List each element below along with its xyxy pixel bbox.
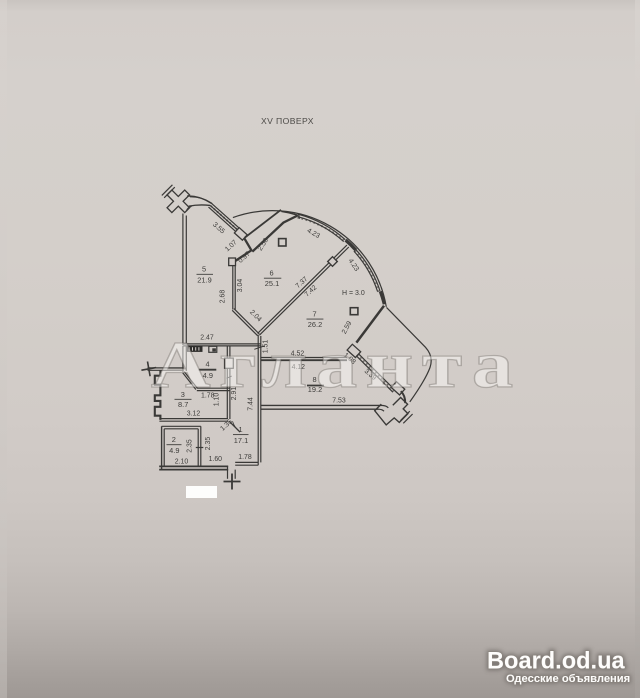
svg-text:3.04: 3.04 bbox=[237, 279, 244, 293]
svg-text:7: 7 bbox=[312, 310, 316, 319]
svg-text:6: 6 bbox=[269, 269, 273, 278]
svg-text:2.04: 2.04 bbox=[248, 309, 263, 323]
svg-text:1.07: 1.07 bbox=[224, 239, 239, 253]
svg-text:1.35: 1.35 bbox=[219, 418, 234, 432]
svg-text:2.10: 2.10 bbox=[175, 458, 189, 465]
svg-text:25.1: 25.1 bbox=[265, 279, 279, 288]
svg-text:21.9: 21.9 bbox=[197, 276, 211, 285]
svg-text:2: 2 bbox=[172, 435, 176, 444]
svg-text:3.12: 3.12 bbox=[187, 411, 201, 418]
svg-text:1.60: 1.60 bbox=[209, 456, 223, 463]
svg-text:4.23: 4.23 bbox=[347, 258, 360, 273]
svg-text:17.1: 17.1 bbox=[234, 436, 248, 445]
svg-text:1.78: 1.78 bbox=[238, 454, 252, 461]
svg-text:1: 1 bbox=[238, 425, 242, 434]
svg-text:5: 5 bbox=[202, 265, 206, 274]
svg-text:2.68: 2.68 bbox=[220, 290, 227, 304]
svg-text:2.35: 2.35 bbox=[205, 437, 212, 451]
svg-text:4.23: 4.23 bbox=[306, 227, 321, 240]
svg-text:Board.od.ua: Board.od.ua bbox=[487, 649, 626, 675]
svg-text:4.9: 4.9 bbox=[169, 446, 179, 455]
svg-text:2.58: 2.58 bbox=[257, 237, 270, 252]
svg-text:2.35: 2.35 bbox=[187, 439, 194, 453]
svg-text:H = 3.0: H = 3.0 bbox=[342, 290, 365, 297]
svg-text:Одесские объявления: Одесские объявления bbox=[506, 673, 630, 685]
svg-text:3.55: 3.55 bbox=[211, 221, 226, 235]
